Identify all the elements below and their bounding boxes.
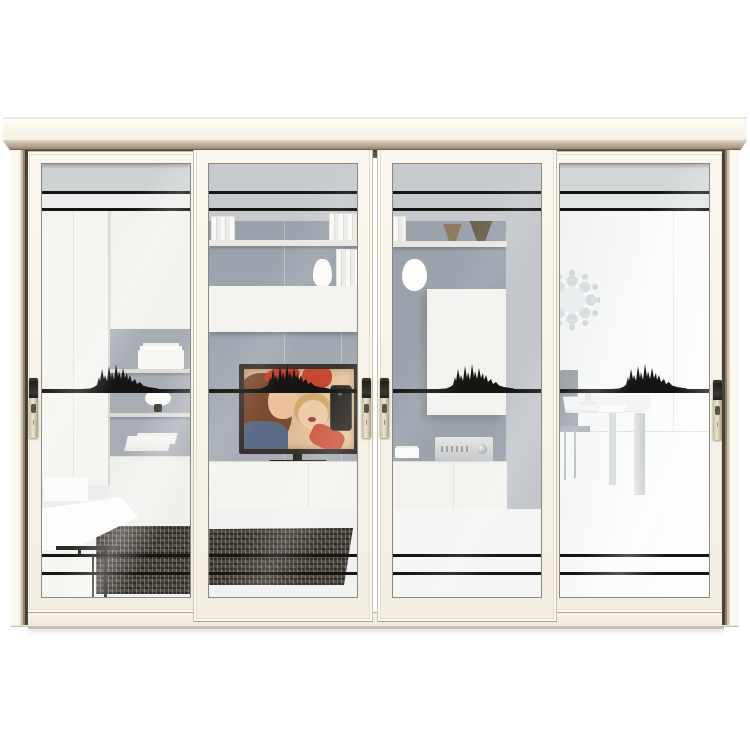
lowboard — [209, 461, 358, 508]
track-shadow — [560, 164, 709, 169]
papers — [395, 448, 419, 458]
upper-cabinet — [110, 209, 191, 331]
door-handle-panel-2 — [362, 378, 371, 438]
books — [393, 216, 406, 244]
child-mouth — [308, 417, 316, 422]
shelf — [110, 413, 191, 417]
books — [211, 216, 235, 241]
white-vase — [313, 259, 332, 288]
glass-panel-1 — [41, 163, 191, 598]
door-panel-2 — [193, 146, 373, 622]
glass-panel-3 — [392, 163, 542, 598]
decal-line-mid — [209, 389, 357, 393]
decal-line-top-2 — [209, 208, 357, 211]
dandelion-wall-decor — [559, 265, 600, 335]
decal-line-bottom-1 — [42, 554, 190, 557]
bowl-lamp-base — [154, 404, 162, 412]
floating-shelf — [393, 241, 507, 247]
side-wall-column — [506, 211, 542, 509]
wall-seam — [673, 209, 674, 431]
decal-line-bottom-2 — [42, 572, 190, 575]
sideboard — [393, 461, 507, 510]
floating-shelf — [209, 240, 358, 246]
bottom-sill — [11, 612, 739, 627]
crown-bevel — [3, 141, 747, 150]
decal-line-top-1 — [209, 191, 357, 194]
decal-line-mid — [42, 389, 190, 393]
books — [336, 249, 358, 287]
decal-line-bottom-1 — [393, 554, 541, 557]
decal-line-top-2 — [42, 208, 190, 211]
mountain-decal — [438, 363, 514, 389]
table-frame — [56, 546, 120, 550]
mountain-decal — [253, 363, 329, 389]
decal-line-top-1 — [393, 191, 541, 194]
door-panel-4 — [544, 151, 725, 613]
stereo-amplifier — [435, 437, 493, 462]
lowboard-seam — [308, 461, 309, 507]
decor-objects — [124, 436, 172, 451]
cake-stand-base — [580, 401, 596, 405]
sideboard-seam — [453, 461, 454, 509]
rug — [96, 526, 191, 594]
glass-panel-2 — [208, 163, 358, 598]
table-leg — [609, 413, 616, 485]
crown-face — [3, 117, 747, 141]
decal-line-mid — [393, 389, 541, 393]
decal-line-bottom-2 — [209, 572, 357, 575]
decal-line-top-1 — [560, 191, 709, 194]
decal-line-top-2 — [560, 208, 709, 211]
door-handle-panel-1 — [29, 378, 38, 438]
papers — [598, 405, 628, 412]
table-leg — [634, 413, 645, 495]
wardrobe-seam — [73, 209, 74, 485]
door-jamb-right — [722, 145, 739, 625]
decal-line-bottom-1 — [209, 554, 357, 557]
door-crown-molding — [3, 117, 747, 150]
floating-cabinet — [209, 286, 358, 332]
woman-blue-top — [244, 421, 288, 449]
mountain-decal — [611, 363, 687, 389]
door-panel-1 — [26, 151, 206, 613]
door-handle-panel-4 — [713, 380, 722, 440]
chair-leg — [574, 430, 576, 478]
decal-line-bottom-2 — [393, 572, 541, 575]
chair-leg — [564, 430, 566, 480]
decal-line-top-1 — [42, 191, 190, 194]
door-handle-panel-3 — [380, 378, 389, 438]
chair-leg — [92, 554, 94, 598]
chair-back — [44, 477, 88, 501]
door-panel-3 — [377, 146, 557, 622]
chair-seat — [42, 556, 92, 598]
white-cup — [402, 259, 427, 291]
door-jamb-left — [11, 145, 28, 625]
decal-line-top-2 — [393, 208, 541, 211]
decal-line-bottom-1 — [560, 554, 709, 557]
tall-cabinet — [427, 289, 506, 415]
mountain-decal — [82, 363, 158, 389]
wardrobe — [42, 209, 110, 485]
track-shadow — [42, 164, 190, 169]
glass-panel-4 — [559, 163, 710, 598]
dish — [570, 409, 588, 413]
product-photo-sliding-door — [0, 0, 750, 750]
books — [329, 213, 357, 241]
decal-line-bottom-2 — [560, 572, 709, 575]
decal-line-mid — [560, 389, 709, 393]
